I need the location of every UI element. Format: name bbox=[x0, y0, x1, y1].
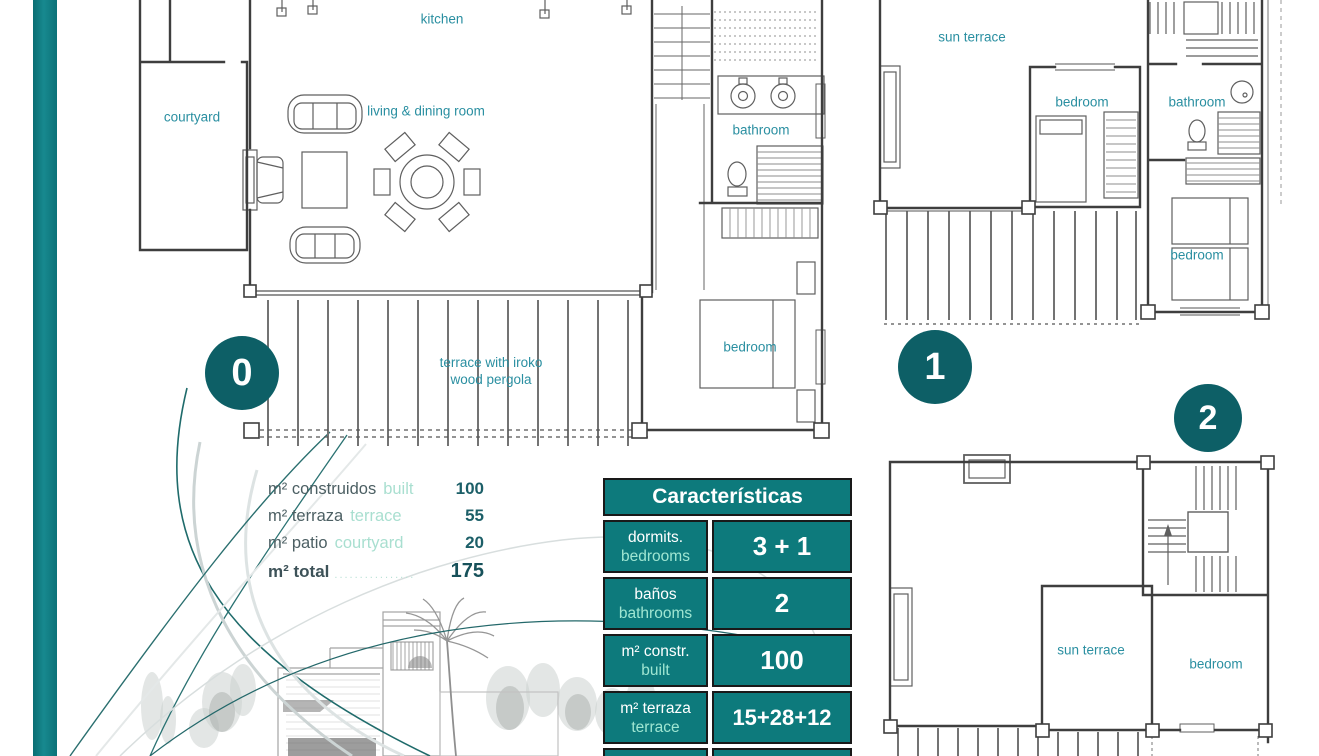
room-label-bedroom-f1-left: bedroom bbox=[1055, 95, 1108, 110]
room-label-terrace-pergola: terrace with irokowood pergola bbox=[416, 354, 566, 388]
row-label: dormits. bedrooms bbox=[603, 520, 708, 573]
terrace-label-line1: terrace with iroko bbox=[440, 355, 543, 370]
table-row-built: m² constr. built 100 bbox=[603, 634, 852, 687]
area-total-value: 175 bbox=[451, 560, 484, 583]
floor-1-badge: 1 bbox=[898, 330, 972, 404]
area-value: 100 bbox=[456, 479, 484, 499]
left-accent-bar bbox=[33, 0, 57, 756]
room-label-bathroom-f1: bathroom bbox=[1168, 95, 1225, 110]
row-label: m² patio bbox=[603, 748, 708, 756]
area-label-es: m² terraza bbox=[268, 507, 343, 526]
row-label-en: terrace bbox=[631, 718, 679, 737]
row-label: m² constr. built bbox=[603, 634, 708, 687]
table-row-terrace: m² terraza terrace 15+28+12 bbox=[603, 691, 852, 744]
row-label-es: m² terraza bbox=[620, 699, 691, 718]
characteristics-title: Características bbox=[603, 478, 852, 516]
row-value bbox=[712, 748, 852, 756]
area-label-es: m² patio bbox=[268, 534, 328, 553]
area-label-en: built bbox=[383, 480, 413, 499]
area-value: 20 bbox=[465, 533, 484, 553]
area-label-es: m² construidos bbox=[268, 480, 376, 499]
dotted-leader: ................ bbox=[334, 569, 445, 581]
row-value: 100 bbox=[712, 634, 852, 687]
area-label-en: courtyard bbox=[335, 534, 404, 553]
row-value: 15+28+12 bbox=[712, 691, 852, 744]
characteristics-table: Características dormits. bedrooms 3 + 1 … bbox=[603, 478, 852, 756]
area-row-built: m² construidos built 100 bbox=[268, 479, 484, 506]
area-value: 55 bbox=[465, 506, 484, 526]
table-row-patio: m² patio bbox=[603, 748, 852, 756]
room-label-sun-terrace-f1: sun terrace bbox=[938, 30, 1006, 45]
table-row-bathrooms: baños bathrooms 2 bbox=[603, 577, 852, 630]
area-row-terrace: m² terraza terrace 55 bbox=[268, 506, 484, 533]
row-label-es: baños bbox=[634, 585, 676, 604]
room-label-bathroom-f0: bathroom bbox=[732, 123, 789, 138]
row-label-es: dormits. bbox=[628, 528, 683, 547]
room-label-kitchen: kitchen bbox=[421, 12, 464, 27]
area-row-total: m² total ................ 175 bbox=[268, 560, 484, 590]
area-summary: m² construidos built 100 m² terraza terr… bbox=[268, 479, 484, 590]
terrace-label-line2: wood pergola bbox=[450, 372, 531, 387]
row-value: 3 + 1 bbox=[712, 520, 852, 573]
floor-plan-2 bbox=[884, 455, 1274, 756]
row-label: m² terraza terrace bbox=[603, 691, 708, 744]
row-label-en: built bbox=[641, 661, 669, 680]
area-label-en: terrace bbox=[350, 507, 401, 526]
room-label-bedroom-f0: bedroom bbox=[723, 340, 776, 355]
row-label: baños bathrooms bbox=[603, 577, 708, 630]
area-row-courtyard: m² patio courtyard 20 bbox=[268, 533, 484, 560]
room-label-living-dining: living & dining room bbox=[367, 104, 485, 119]
area-total-label: m² total bbox=[268, 562, 329, 582]
floor-plan-1 bbox=[874, 0, 1281, 324]
row-value: 2 bbox=[712, 577, 852, 630]
floor-0-badge: 0 bbox=[205, 336, 279, 410]
row-label-en: bedrooms bbox=[621, 547, 690, 566]
floor-2-badge: 2 bbox=[1174, 384, 1242, 452]
room-label-sun-terrace-f2: sun terrace bbox=[1057, 643, 1125, 658]
row-label-en: bathrooms bbox=[619, 604, 692, 623]
brochure-page: kitchen courtyard living & dining room b… bbox=[0, 0, 1319, 756]
row-label-es: m² constr. bbox=[621, 642, 689, 661]
room-label-bedroom-f2: bedroom bbox=[1189, 657, 1242, 672]
table-row-bedrooms: dormits. bedrooms 3 + 1 bbox=[603, 520, 852, 573]
room-label-courtyard: courtyard bbox=[164, 110, 220, 125]
room-label-bedroom-f1-right: bedroom bbox=[1170, 248, 1223, 263]
palm-tree-sketch bbox=[406, 598, 494, 658]
